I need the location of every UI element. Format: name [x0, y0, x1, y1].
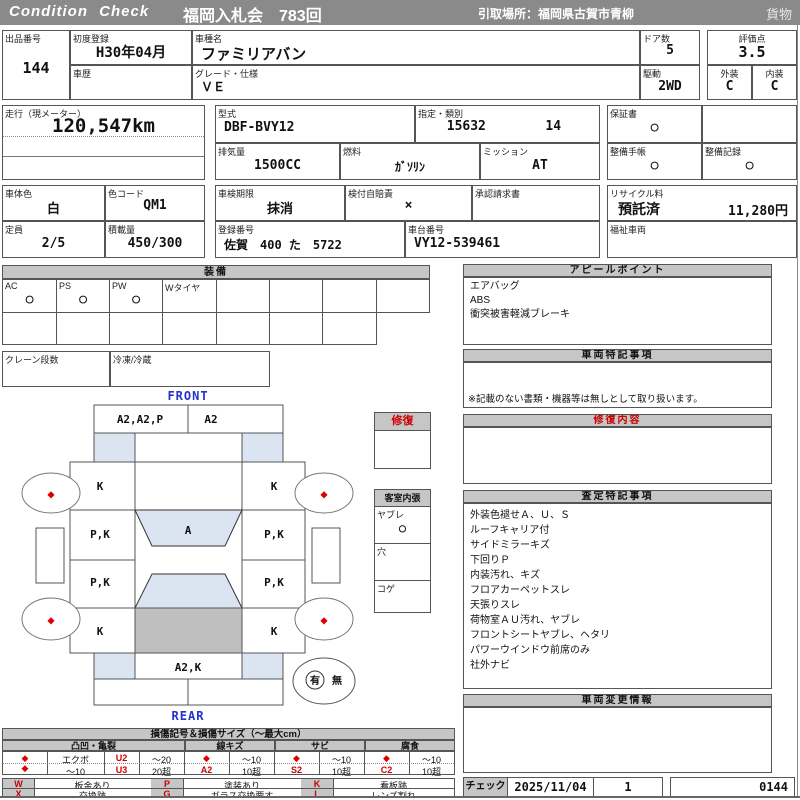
rust-r2-size: 10超	[319, 765, 364, 778]
grade-cell: グレード・仕様 ＶＥ	[192, 65, 640, 100]
back-panel-code: A2,K	[175, 661, 202, 674]
appeal-line: 衝突被害軽減ブレーキ	[470, 308, 570, 322]
equipment-empty-cell	[2, 312, 57, 345]
equipment-ac-label: AC	[5, 281, 18, 291]
cabin-tear-value: ○	[375, 521, 430, 535]
equipment-empty-cell	[162, 312, 217, 345]
body-color-value: 白	[3, 198, 104, 217]
transmission-value: AT	[481, 158, 599, 173]
assessment-line: ルーフキャリア付	[470, 523, 610, 538]
model-name-cell: 車種名 ファミリアバン	[192, 30, 640, 65]
condition-check-logo: Condition Check	[9, 3, 149, 20]
warranty-cell: 保証書 ○	[607, 105, 702, 143]
model-code-cell: 型式 DBF-BVY12	[215, 105, 415, 143]
change-info-section-body	[463, 707, 772, 773]
tire-mark-fr-icon: ◆	[320, 487, 328, 501]
drive-cell: 駆動 2WD	[640, 65, 700, 100]
drive-value: 2WD	[641, 79, 699, 94]
assessment-section-header: 査定特記事項	[463, 490, 772, 503]
quarter-rl-code: K	[97, 625, 104, 638]
class-number-value: 14	[517, 119, 590, 134]
rear-label: REAR	[172, 709, 205, 723]
approval-request-cell: 承認請求書	[472, 185, 600, 221]
fender-fr-code: K	[271, 480, 278, 493]
equipment-empty-cell	[109, 312, 163, 345]
scratch-r2-code: A2	[184, 765, 229, 775]
door-rr-code: P,K	[264, 576, 284, 589]
cabin-hole-cell: 穴	[375, 544, 430, 581]
rear-corner-right	[242, 653, 283, 679]
equipment-cell-wtire: Wタイヤ	[162, 279, 217, 313]
check-label: チェック	[464, 778, 508, 796]
presence-no-label: 無	[332, 674, 342, 687]
inspection-value: 抹消	[216, 198, 344, 217]
code-w-key: W	[3, 779, 35, 788]
equipment-ps-value: ○	[57, 292, 109, 307]
repair-flag-box: 修復	[374, 412, 431, 469]
dent-large-diamond-icon: ◆	[3, 763, 47, 774]
doors-cell: ドア数 5	[640, 30, 700, 65]
corrosion-group-header: 腐食	[365, 740, 455, 751]
front-corner-right	[242, 433, 283, 462]
scratch-group-header: 線キズ	[185, 740, 275, 751]
repair-flag-title: 修復	[375, 413, 430, 431]
load-capacity-label: 積載量	[108, 223, 135, 236]
appeal-line: エアバッグ	[470, 280, 570, 294]
front-corner-left	[94, 433, 135, 462]
recycle-status-value: 預託済	[618, 199, 660, 219]
type-number-value: 15632	[416, 119, 517, 134]
equipment-empty-cell	[269, 312, 323, 345]
assessment-line: サイドミラーキズ	[470, 538, 610, 553]
vehicle-notes-section-header: 車両特記事項	[463, 349, 772, 362]
front-label: FRONT	[167, 389, 208, 403]
interior-grade-cell: 内装 C	[752, 65, 797, 100]
model-code-label: 型式	[218, 107, 236, 120]
front-bumper-right-code: A2	[204, 413, 217, 426]
door-fr-code: P,K	[264, 528, 284, 541]
equipment-ps-label: PS	[59, 281, 71, 291]
rust-group-header: サビ	[275, 740, 365, 751]
check-date: 2025/11/04	[508, 778, 594, 796]
approval-request-label: 承認請求書	[475, 187, 520, 200]
equipment-cell-pw: PW ○	[109, 279, 163, 313]
inspection-cell: 車検期限 抹消	[215, 185, 345, 221]
first-registration-value: H30年04月	[71, 42, 191, 62]
corrosion-r2-size: 10超	[409, 765, 454, 778]
quarter-rr-code: K	[271, 625, 278, 638]
presence-yes-label: 有	[310, 674, 320, 687]
fuel-value: ｶﾞｿﾘﾝ	[341, 158, 479, 175]
vehicle-notes-section-body: ※記載のない書類・機器等は無しとして取り扱います。	[463, 362, 772, 408]
exterior-grade-cell: 外装 C	[707, 65, 752, 100]
equipment-pw-label: PW	[112, 281, 127, 291]
color-code-value: QM1	[106, 198, 204, 213]
welfare-vehicle-cell: 福祉車両	[607, 221, 797, 258]
assessment-line: 荷物室ＡＵ汚れ、ヤブレ	[470, 613, 610, 628]
category-tag: 貨物	[766, 4, 792, 23]
transmission-cell: ミッション AT	[480, 143, 600, 180]
side-sill-left	[36, 528, 64, 583]
appeal-section-body: エアバッグ ABS 衝突被害軽減ブレーキ	[463, 277, 772, 345]
assessment-line: パワーウインドウ前席のみ	[470, 643, 610, 658]
maintenance-book-cell: 整備手帳 ○	[607, 143, 702, 180]
model-code-value: DBF-BVY12	[216, 120, 414, 135]
repair-code-legend: W 板金あり P 塗装あり K 看板跡 X 交換跡 G ガラス交換要す L レン…	[2, 778, 455, 798]
tire-mark-rl-icon: ◆	[47, 613, 55, 627]
equipment-empty-cell	[269, 279, 323, 313]
corrosion-r2-code: C2	[364, 765, 409, 775]
score-cell: 評価点 3.5	[707, 30, 797, 65]
assessment-line: フロントシートヤブレ、ヘタリ	[470, 628, 610, 643]
dent-r1-code: U2	[104, 753, 139, 763]
code-k-key: K	[301, 779, 334, 788]
equipment-wtire-label: Wタイヤ	[165, 281, 200, 294]
code-p-label: 塗装あり	[183, 779, 302, 788]
rust-diamond-icon: ◆	[274, 753, 319, 764]
side-sill-right	[312, 528, 340, 583]
equipment-empty-cell	[376, 279, 430, 313]
exterior-grade-value: C	[708, 79, 751, 94]
model-name-value: ファミリアバン	[193, 43, 639, 64]
code-k-label: 看板跡	[333, 779, 454, 788]
crane-label: クレーン段数	[5, 353, 59, 366]
windshield-code: A	[185, 524, 192, 537]
cabin-tear-cell: ヤブレ ○	[375, 507, 430, 544]
vehicle-notes-footnote: ※記載のない書類・機器等は無しとして取り扱います。	[468, 391, 703, 405]
chassis-number-value: VY12-539461	[406, 236, 599, 251]
assessment-line: フロアカーペットスレ	[470, 583, 610, 598]
insurance-cell: 検付自賠責 ×	[345, 185, 472, 221]
capacity-cell: 定員 2/5	[2, 221, 105, 258]
page-right-border	[797, 25, 798, 798]
assessment-line: 天張りスレ	[470, 598, 610, 613]
recycle-fee-value: 11,280円	[728, 200, 788, 219]
corrosion-diamond-icon: ◆	[364, 753, 409, 764]
fridge-cell: 冷凍/冷蔵	[110, 351, 270, 387]
maintenance-record-value: ○	[703, 158, 796, 173]
tire-mark-rr-icon: ◆	[320, 613, 328, 627]
mileage-divider-solid	[3, 156, 204, 157]
repair-content-section-body	[463, 427, 772, 484]
pickup-location: 引取場所：福岡県古賀市青柳	[478, 5, 634, 22]
rear-window-panel	[135, 574, 242, 608]
chassis-number-cell: 車台番号 VY12-539461	[405, 221, 600, 258]
sheet-number-value: 0144	[759, 778, 788, 796]
damage-legend-title: 損傷記号＆損傷サイズ（〜最大cm）	[2, 728, 455, 740]
warranty-value: ○	[608, 120, 701, 135]
front-bumper-left-code: A2,A2,P	[117, 413, 164, 426]
registration-number-label: 登録番号	[218, 223, 254, 236]
equipment-section-header: 装備	[2, 265, 430, 279]
assessment-line: 下回りＰ	[470, 553, 610, 568]
cabin-lining-box: 客室内張 ヤブレ ○ 穴 コゲ	[374, 489, 431, 613]
warranty-empty-cell	[702, 105, 797, 143]
change-info-section-header: 車両変更情報	[463, 694, 772, 707]
displacement-cell: 排気量 1500CC	[215, 143, 340, 180]
appeal-section-header: アピールポイント	[463, 264, 772, 277]
displacement-value: 1500CC	[216, 158, 339, 173]
doors-value: 5	[641, 43, 699, 58]
displacement-label: 排気量	[218, 145, 245, 158]
warranty-label: 保証書	[610, 107, 637, 120]
maintenance-record-label: 整備記録	[705, 145, 741, 158]
first-registration-cell: 初度登録 H30年04月	[70, 30, 192, 65]
equipment-empty-cell	[56, 312, 110, 345]
cabin-burn-cell: コゲ	[375, 581, 430, 614]
dent-r2-code: U3	[104, 765, 139, 775]
maintenance-book-label: 整備手帳	[610, 145, 646, 158]
damage-size-table: ◆ エクボ U2 〜20 ◆ 〜10 ◆ 〜10 ◆ 〜10 ◆ 〜10 U3 …	[2, 751, 455, 775]
title-bar: Condition Check 福岡入札会 783回 引取場所：福岡県古賀市青柳…	[0, 0, 800, 25]
body-color-cell: 車体色 白	[2, 185, 105, 221]
assessment-line: 外装色褪せＡ、Ｕ、Ｓ	[470, 508, 610, 523]
appeal-line: ABS	[470, 294, 570, 308]
equipment-pw-value: ○	[110, 292, 162, 307]
fuel-label: 燃料	[343, 145, 361, 158]
equipment-ac-value: ○	[3, 292, 56, 307]
recycle-fee-cell: リサイクル料 預託済 11,280円	[607, 185, 797, 221]
dent-group-header: 凸凹・亀裂	[2, 740, 185, 751]
door-fl-code: P,K	[90, 528, 110, 541]
registration-number-value: 佐賀 400 た 5722	[216, 236, 404, 253]
cabin-burn-label: コゲ	[377, 582, 395, 595]
lot-number-cell: 出品番号 144	[2, 30, 70, 100]
lot-number-value: 144	[3, 59, 69, 77]
code-p-key: P	[151, 779, 184, 788]
repair-content-section-header: 修復内容	[463, 414, 772, 427]
insurance-value: ×	[346, 198, 471, 213]
auction-sheet: Condition Check 福岡入札会 783回 引取場所：福岡県古賀市青柳…	[0, 0, 800, 800]
dent-r2-size: 20超	[139, 765, 184, 778]
mileage-cell: 走行（現メーター） 120,547km	[2, 105, 205, 180]
fender-fl-code: K	[97, 480, 104, 493]
equipment-cell-ps: PS ○	[56, 279, 110, 313]
cabin-hole-label: 穴	[377, 545, 386, 558]
scratch-r2-size: 10超	[229, 765, 274, 778]
cabin-tear-label: ヤブレ	[377, 508, 404, 521]
rear-corner-left	[94, 653, 135, 679]
grade-value: ＶＥ	[193, 78, 639, 95]
chassis-number-label: 車台番号	[408, 223, 444, 236]
car-damage-diagram: FRONT A2,A2,P A2 K K P,K P,K P,K P,K K K…	[0, 388, 360, 728]
crane-cell: クレーン段数	[2, 351, 110, 387]
maintenance-record-cell: 整備記録 ○	[702, 143, 797, 180]
equipment-empty-cell	[322, 279, 377, 313]
tire-mark-fl-icon: ◆	[47, 487, 55, 501]
fuel-cell: 燃料 ｶﾞｿﾘﾝ	[340, 143, 480, 180]
sheet-number-box: 0144	[670, 777, 795, 797]
score-value: 3.5	[708, 43, 796, 61]
scratch-diamond-icon: ◆	[184, 753, 229, 764]
rust-r2-code: S2	[274, 765, 319, 775]
fridge-label: 冷凍/冷蔵	[113, 353, 152, 366]
door-rl-code: P,K	[90, 576, 110, 589]
page-bottom-border	[0, 796, 800, 798]
mileage-value: 120,547km	[3, 115, 204, 137]
equipment-empty-cell	[216, 279, 270, 313]
code-w-label: 板金あり	[34, 779, 152, 788]
color-code-cell: 色コード QM1	[105, 185, 205, 221]
interior-grade-value: C	[753, 79, 796, 94]
capacity-value: 2/5	[3, 236, 104, 251]
assessment-section-body: 外装色褪せＡ、Ｕ、Ｓ ルーフキャリア付 サイドミラーキズ 下回りＰ 内装汚れ、キ…	[463, 503, 772, 689]
dent-r2-name: 〜10	[47, 765, 104, 778]
load-capacity-value: 450/300	[106, 236, 204, 251]
auction-title: 福岡入札会 783回	[183, 2, 322, 26]
transmission-label: ミッション	[483, 145, 528, 158]
load-capacity-cell: 積載量 450/300	[105, 221, 205, 258]
capacity-label: 定員	[5, 223, 23, 236]
check-row: チェック 2025/11/04 1	[463, 777, 663, 797]
assessment-line: 内装汚れ、キズ	[470, 568, 610, 583]
mileage-divider-dotted	[3, 136, 204, 137]
check-count: 1	[594, 778, 662, 796]
cabin-lining-title: 客室内張	[375, 490, 430, 507]
welfare-vehicle-label: 福祉車両	[610, 223, 646, 236]
car-history-cell: 車歴	[70, 65, 192, 100]
registration-number-cell: 登録番号 佐賀 400 た 5722	[215, 221, 405, 258]
maintenance-book-value: ○	[608, 158, 701, 173]
car-history-label: 車歴	[73, 67, 91, 80]
lot-number-label: 出品番号	[5, 32, 41, 45]
type-class-cell: 指定・類別 15632 14	[415, 105, 600, 143]
equipment-cell-ac: AC ○	[2, 279, 57, 313]
equipment-empty-cell	[216, 312, 270, 345]
equipment-empty-cell	[322, 312, 377, 345]
cargo-area-panel	[135, 608, 242, 653]
assessment-line: 社外ナビ	[470, 658, 610, 673]
